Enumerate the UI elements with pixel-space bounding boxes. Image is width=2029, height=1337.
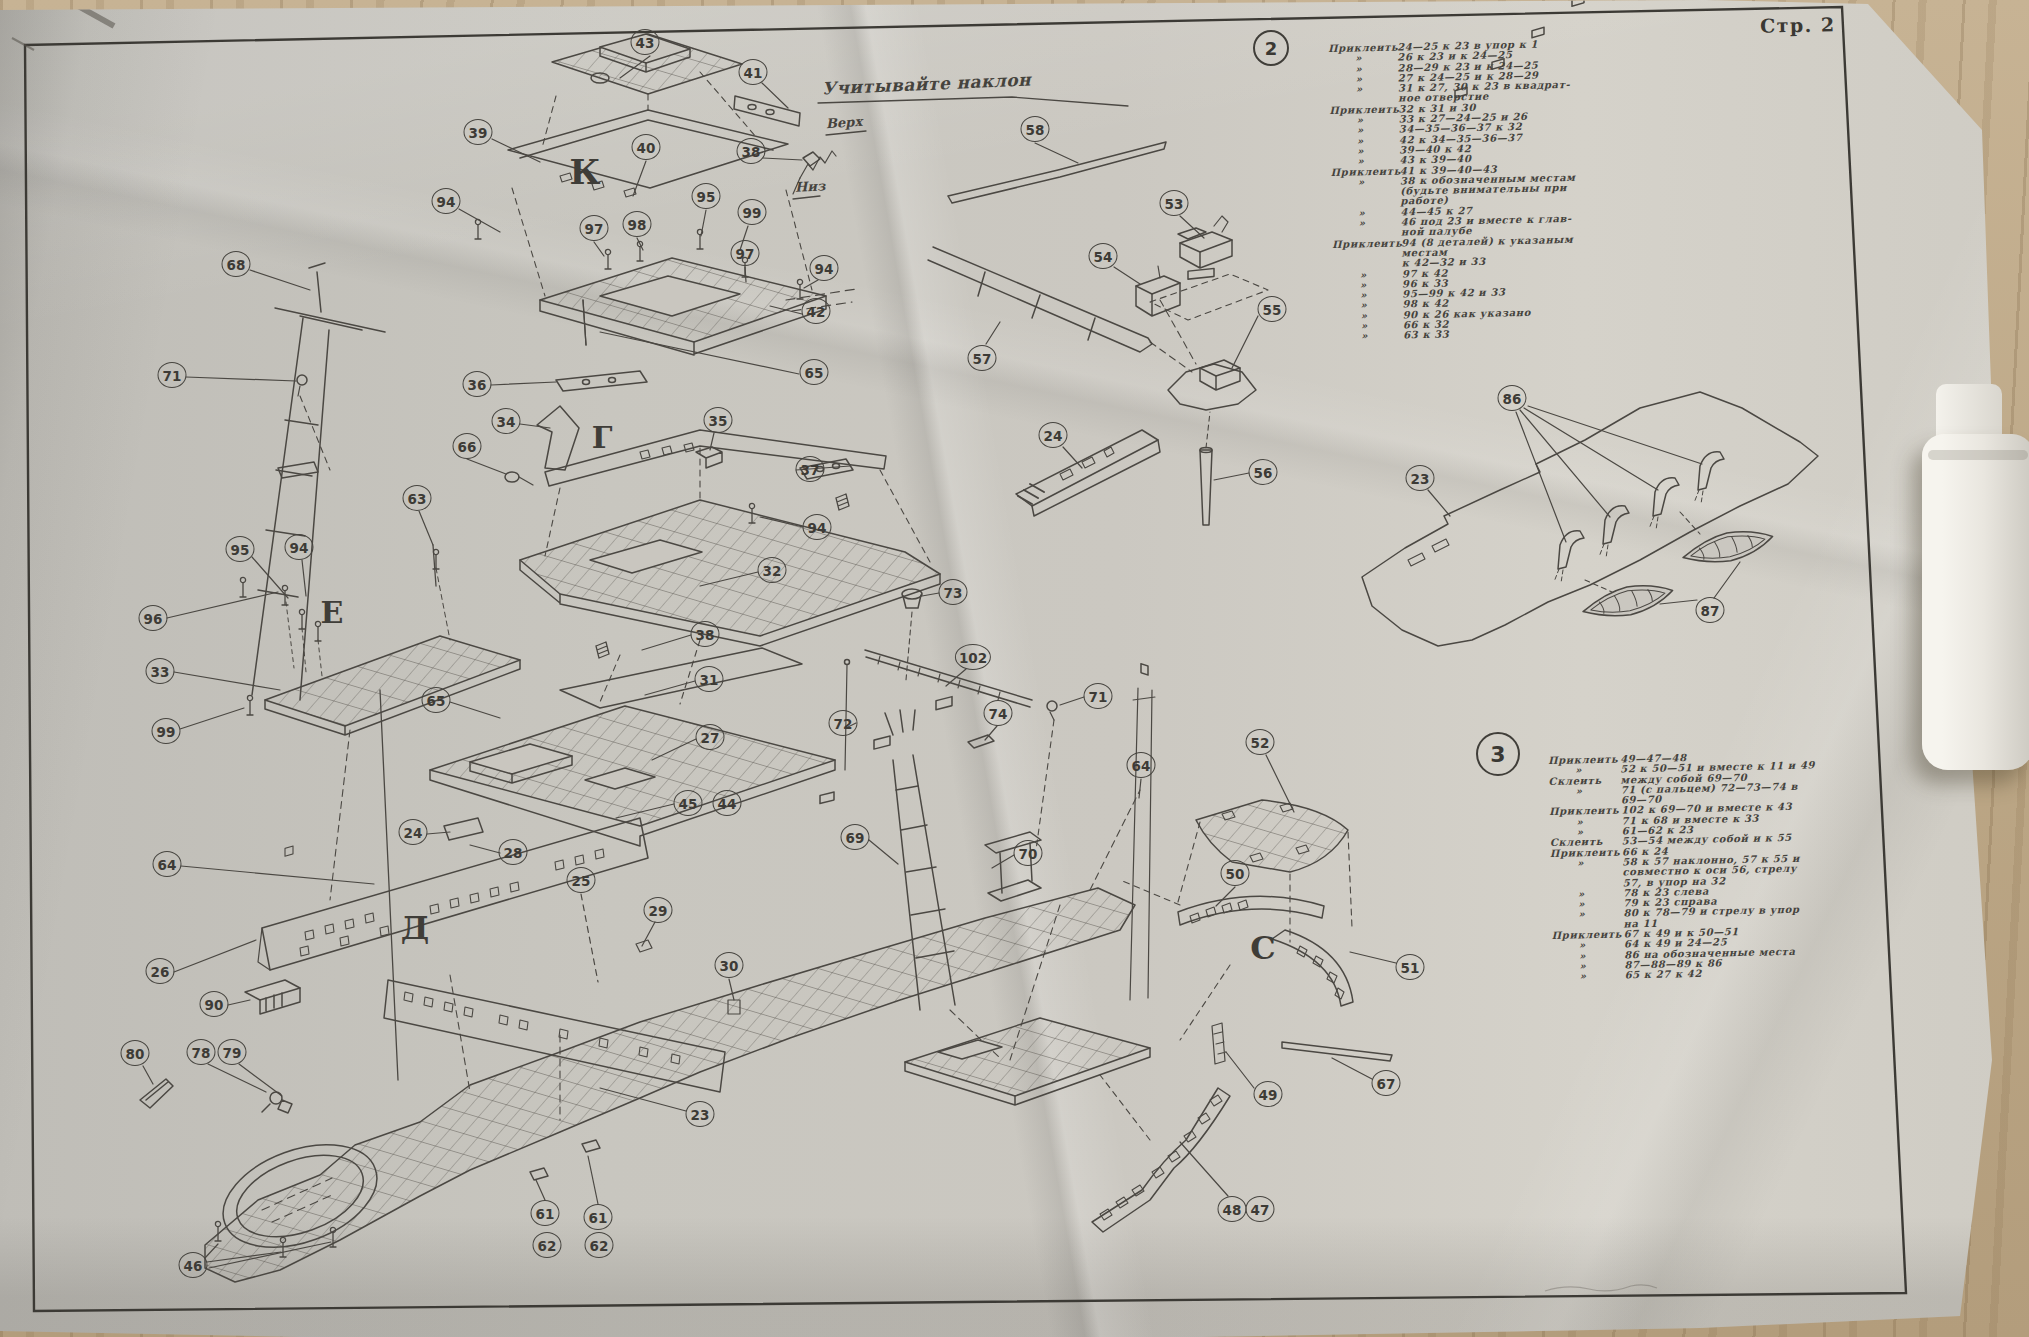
part-callout: 48 bbox=[1218, 1196, 1247, 1222]
panel-24 bbox=[1016, 430, 1160, 516]
part-callout: 102 bbox=[955, 644, 991, 670]
part-callout: 62 bbox=[585, 1232, 614, 1258]
part-callout: 71 bbox=[1084, 683, 1113, 709]
bottle-ridge bbox=[1928, 450, 2028, 460]
part-callout: 65 bbox=[800, 359, 829, 385]
part-callout: 53 bbox=[1160, 190, 1189, 216]
part-callout: 72 bbox=[829, 710, 858, 736]
part-callout: 25 bbox=[567, 867, 596, 893]
part-callout: 47 bbox=[1246, 1196, 1275, 1222]
part-callout: 51 bbox=[1396, 954, 1425, 980]
instructions-section-3: Приклеить 49—47—48 » 52 к 50—51 и вместе… bbox=[1548, 750, 1819, 982]
part-callout: 94 bbox=[810, 255, 839, 281]
superstructure-g bbox=[505, 371, 886, 510]
hull-side-48-47 bbox=[1092, 1075, 1230, 1232]
part-callout: 28 bbox=[499, 839, 528, 865]
part-callout: 94 bbox=[432, 188, 461, 214]
part-callout: 63 bbox=[403, 485, 432, 511]
deck-e-33 bbox=[240, 577, 520, 900]
part-callout: 80 bbox=[121, 1040, 150, 1066]
part-callout: 39 bbox=[464, 119, 493, 145]
part-callout: 27 bbox=[696, 724, 725, 750]
part-callout: 52 bbox=[1246, 729, 1275, 755]
instructions-section-2: Приклеить 24—25 к 23 в упор к 1 » 26 к 2… bbox=[1328, 39, 1579, 343]
assembly-letter: С bbox=[1250, 929, 1275, 967]
part-callout: 41 bbox=[739, 59, 768, 85]
part-callout: 23 bbox=[686, 1101, 715, 1127]
section-3-badge: 3 bbox=[1476, 732, 1520, 776]
down-label: Низ bbox=[795, 178, 826, 195]
part-callout: 44 bbox=[713, 790, 742, 816]
part-callout: 95 bbox=[226, 536, 255, 562]
bottle-body bbox=[1922, 434, 2029, 770]
blade-58 bbox=[948, 142, 1166, 203]
up-label: Верх bbox=[826, 114, 863, 131]
part-callout: 26 bbox=[146, 958, 175, 984]
part-callout: 98 bbox=[623, 211, 652, 237]
bridge-k-assembly bbox=[508, 34, 820, 197]
section-2-badge: 2 bbox=[1253, 30, 1289, 66]
part-callout: 34 bbox=[492, 408, 521, 434]
part-callout: 61 bbox=[531, 1200, 560, 1226]
part-callout: 35 bbox=[704, 407, 733, 433]
part-callout: 40 bbox=[632, 134, 661, 160]
part-callout: 70 bbox=[1014, 840, 1043, 866]
part-callout: 73 bbox=[939, 579, 968, 605]
part-callout: 68 bbox=[222, 251, 251, 277]
part-callout: 33 bbox=[146, 658, 175, 684]
assembly-letter: К bbox=[570, 152, 601, 192]
part-callout: 62 bbox=[533, 1232, 562, 1258]
part-callout: 90 bbox=[200, 991, 229, 1017]
part-callout: 65 bbox=[422, 687, 451, 713]
part-callout: 87 bbox=[1696, 597, 1725, 623]
part-callout: 61 bbox=[584, 1204, 613, 1230]
part-callout: 66 bbox=[453, 433, 482, 459]
part-callout: 64 bbox=[153, 851, 182, 877]
part-callout: 56 bbox=[1249, 459, 1278, 485]
part-callout: 64 bbox=[1127, 752, 1156, 778]
part-callout: 57 bbox=[968, 345, 997, 371]
part-callout: 99 bbox=[152, 718, 181, 744]
white-bottle bbox=[1918, 384, 2029, 770]
antenna-rods-64 bbox=[1130, 688, 1155, 1000]
page-number: Стр. 2 bbox=[1760, 13, 1836, 36]
part-callout: 94 bbox=[803, 514, 832, 540]
bow-deck-49 bbox=[905, 1018, 1226, 1105]
part-callout: 38 bbox=[691, 621, 720, 647]
part-callout: 67 bbox=[1372, 1070, 1401, 1096]
exploded-diagram-art bbox=[0, 0, 2029, 1337]
deck-32 bbox=[520, 448, 940, 658]
part-callout: 96 bbox=[139, 605, 168, 631]
assembly-letter: Г bbox=[592, 420, 613, 455]
part-callout: 58 bbox=[1021, 116, 1050, 142]
part-callout: 43 bbox=[631, 29, 660, 55]
part-callout: 38 bbox=[737, 138, 766, 164]
paper-sheet: Стр. 2 Учитывайте наклон Верх Низ 2 3 Пр… bbox=[0, 0, 2029, 1337]
funnel-deck-42 bbox=[475, 188, 826, 355]
part-callout: 74 bbox=[984, 700, 1013, 726]
photo-of-instruction-sheet: Стр. 2 Учитывайте наклон Верх Низ 2 3 Пр… bbox=[0, 0, 2029, 1337]
part-callout: 45 bbox=[674, 790, 703, 816]
part-callout: 55 bbox=[1258, 296, 1287, 322]
part-callout: 79 bbox=[218, 1039, 247, 1065]
part-callout: 24 bbox=[1039, 422, 1068, 448]
deckhouses-53-54-55 bbox=[1136, 216, 1268, 675]
part-callout: 95 bbox=[692, 183, 721, 209]
part-callout: 42 bbox=[802, 298, 831, 324]
part-callout: 23 bbox=[1406, 465, 1435, 491]
part-callout: 46 bbox=[179, 1252, 208, 1278]
part-callout: 99 bbox=[738, 199, 767, 225]
part-callout: 29 bbox=[644, 897, 673, 923]
small-fittings bbox=[140, 1079, 292, 1113]
part-callout: 69 bbox=[841, 824, 870, 850]
part-callout: 97 bbox=[731, 240, 760, 266]
assembly-letter: Е bbox=[321, 595, 344, 630]
part-callout: 37 bbox=[796, 456, 825, 482]
part-callout: 36 bbox=[463, 371, 492, 397]
fan-deck-52-group bbox=[1120, 800, 1353, 1040]
part-callout: 31 bbox=[695, 666, 724, 692]
part-callout: 32 bbox=[758, 557, 787, 583]
part-callout: 71 bbox=[158, 362, 187, 388]
part-callout: 97 bbox=[580, 215, 609, 241]
part-callout: 78 bbox=[187, 1039, 216, 1065]
deck-strip-67 bbox=[1282, 1042, 1392, 1061]
part-callout: 30 bbox=[715, 952, 744, 978]
part-callout: 54 bbox=[1089, 243, 1118, 269]
assembly-letter: Д bbox=[401, 909, 429, 947]
part-callout: 86 bbox=[1498, 385, 1527, 411]
part-callout: 94 bbox=[285, 534, 314, 560]
part-callout: 50 bbox=[1221, 860, 1250, 886]
part-callout: 24 bbox=[399, 819, 428, 845]
part-callout: 49 bbox=[1254, 1081, 1283, 1107]
